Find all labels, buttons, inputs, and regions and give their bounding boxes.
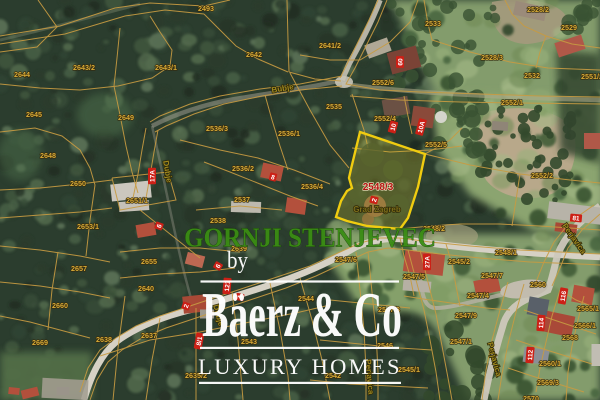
svg-text:2535: 2535	[326, 102, 342, 111]
svg-text:81: 81	[572, 215, 580, 223]
svg-text:2547/9: 2547/9	[455, 311, 477, 320]
svg-text:2548/3: 2548/3	[363, 182, 394, 193]
svg-text:2552/1: 2552/1	[501, 98, 523, 107]
svg-text:2641/2: 2641/2	[319, 41, 341, 50]
svg-text:2493: 2493	[198, 4, 214, 13]
svg-text:17A: 17A	[149, 170, 156, 182]
svg-text:2547/1: 2547/1	[450, 337, 472, 346]
svg-text:2643/1: 2643/1	[155, 63, 177, 72]
svg-text:2547/7: 2547/7	[481, 271, 503, 280]
svg-text:2651/1: 2651/1	[126, 196, 148, 205]
svg-text:2565/1: 2565/1	[577, 304, 599, 313]
svg-text:2655: 2655	[141, 257, 157, 266]
svg-text:2547/4: 2547/4	[467, 291, 489, 300]
svg-text:2638: 2638	[96, 335, 112, 344]
svg-text:Bäerz & Co: Bäerz & Co	[202, 279, 402, 350]
svg-text:2536/3: 2536/3	[206, 124, 228, 133]
svg-text:2552/6: 2552/6	[372, 78, 394, 87]
svg-text:2547/6: 2547/6	[335, 255, 357, 264]
svg-text:LUXURY HOMES: LUXURY HOMES	[198, 354, 402, 379]
svg-text:2536/2: 2536/2	[232, 164, 254, 173]
svg-text:2648: 2648	[40, 151, 56, 160]
svg-text:2528/2: 2528/2	[527, 5, 549, 14]
svg-text:2660: 2660	[52, 301, 68, 310]
svg-text:2568: 2568	[562, 333, 578, 342]
svg-text:2529: 2529	[561, 23, 577, 32]
svg-text:2642: 2642	[246, 50, 262, 59]
svg-text:2552/5: 2552/5	[425, 140, 447, 149]
svg-text:2533: 2533	[425, 19, 441, 28]
svg-text:2569/3: 2569/3	[537, 378, 559, 387]
svg-text:2548/1: 2548/1	[495, 248, 517, 257]
svg-text:2560/1: 2560/1	[539, 359, 561, 368]
svg-text:2537: 2537	[234, 195, 250, 204]
svg-text:2547/5: 2547/5	[403, 272, 425, 281]
svg-text:2653/1: 2653/1	[77, 222, 99, 231]
svg-text:2545/2: 2545/2	[448, 257, 470, 266]
svg-text:GORNJI STENJEVEC: GORNJI STENJEVEC	[184, 223, 436, 253]
svg-text:2552/2: 2552/2	[531, 171, 553, 180]
svg-text:114: 114	[538, 317, 546, 328]
svg-text:Grad Zagreb: Grad Zagreb	[353, 205, 401, 214]
svg-text:2645: 2645	[26, 110, 42, 119]
svg-text:2536/4: 2536/4	[301, 182, 323, 191]
svg-text:2532: 2532	[524, 71, 540, 80]
svg-text:2657: 2657	[71, 264, 87, 273]
svg-text:by: by	[227, 247, 249, 274]
svg-text:2528/3: 2528/3	[481, 53, 503, 62]
svg-text:2644: 2644	[14, 70, 30, 79]
svg-text:2637: 2637	[141, 331, 157, 340]
svg-text:112: 112	[527, 349, 535, 360]
svg-text:2536/1: 2536/1	[278, 129, 300, 138]
svg-text:2640: 2640	[138, 284, 154, 293]
svg-text:60: 60	[397, 58, 404, 66]
svg-text:2566/1: 2566/1	[574, 321, 596, 330]
svg-text:2643/2: 2643/2	[73, 63, 95, 72]
svg-text:2649: 2649	[118, 113, 134, 122]
svg-text:2669: 2669	[32, 338, 48, 347]
svg-text:27A: 27A	[424, 256, 431, 268]
svg-text:2560: 2560	[530, 280, 546, 289]
svg-text:2551/2: 2551/2	[581, 72, 600, 81]
svg-text:2570: 2570	[523, 394, 539, 400]
svg-text:2650: 2650	[70, 179, 86, 188]
